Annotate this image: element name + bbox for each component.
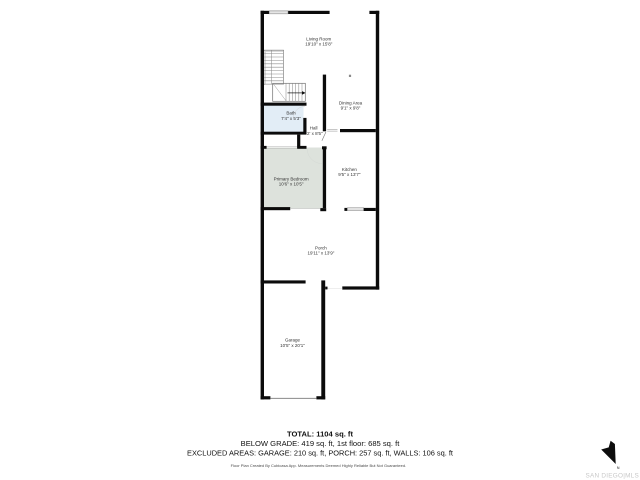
- svg-text:2' x 8'5": 2' x 8'5": [307, 131, 323, 136]
- svg-text:TOTAL: 1104 sq. ft: TOTAL: 1104 sq. ft: [287, 430, 353, 439]
- svg-text:Hall: Hall: [310, 126, 318, 131]
- svg-text:19'11" x 13'9": 19'11" x 13'9": [307, 251, 334, 256]
- svg-text:EXCLUDED AREAS: GARAGE: 210 sq: EXCLUDED AREAS: GARAGE: 210 sq. ft, PORC…: [187, 448, 453, 457]
- svg-text:9'5" x 13'7": 9'5" x 13'7": [338, 172, 361, 177]
- svg-text:7'4" x 5'3": 7'4" x 5'3": [281, 116, 301, 121]
- svg-text:N: N: [617, 466, 620, 470]
- svg-text:19'10" x 15'8": 19'10" x 15'8": [305, 41, 333, 46]
- svg-text:10'6" x 10'5": 10'6" x 10'5": [279, 182, 304, 187]
- svg-text:SAN DIEGO|MLS: SAN DIEGO|MLS: [585, 472, 639, 479]
- svg-text:Floor Plan Created By Cubicasa: Floor Plan Created By Cubicasa App. Meas…: [231, 463, 407, 468]
- svg-text:9'1" x 9'8": 9'1" x 9'8": [341, 106, 361, 111]
- svg-text:10'5" x 20'1": 10'5" x 20'1": [280, 343, 305, 348]
- svg-text:BELOW GRADE: 419 sq. ft, 1st f: BELOW GRADE: 419 sq. ft, 1st floor: 685 …: [241, 439, 401, 448]
